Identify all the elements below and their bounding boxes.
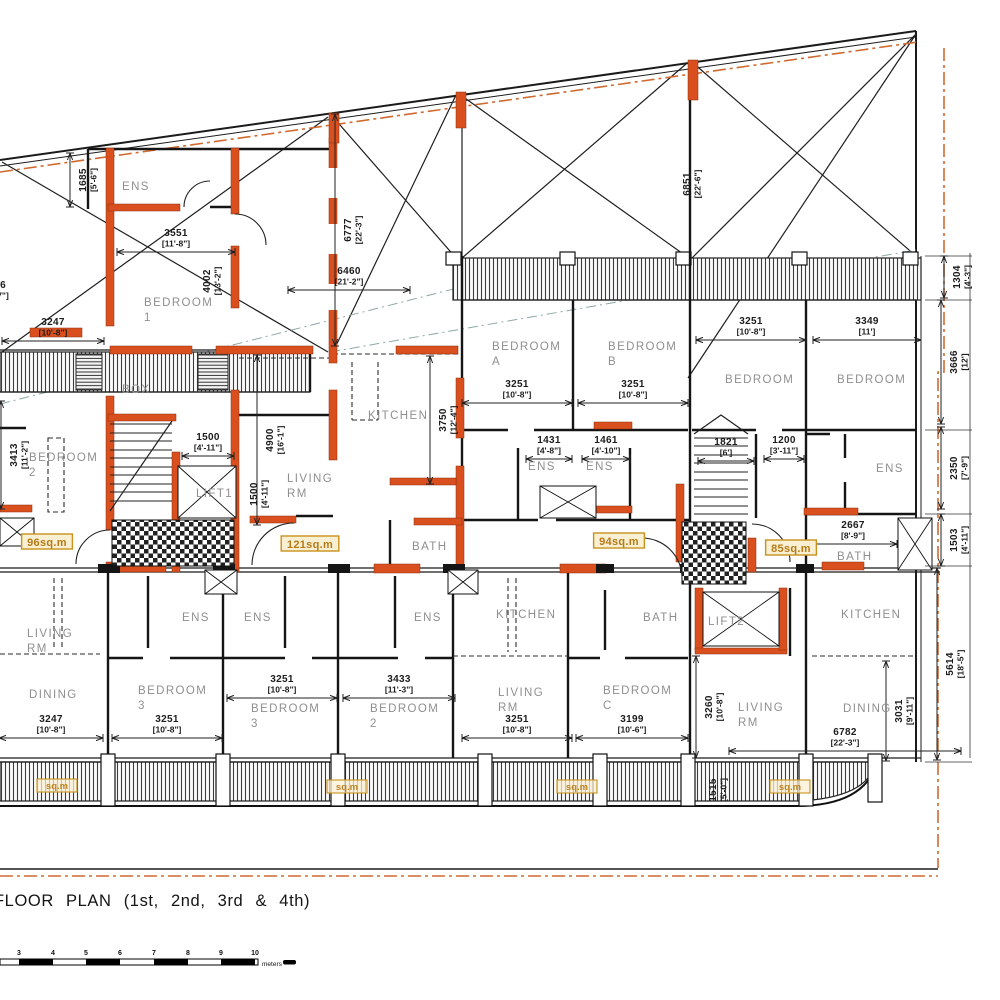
dimension-ft: [16'-1"]	[276, 425, 286, 454]
dimension-label: 1821[6']	[698, 437, 754, 465]
dimension-label: 3251[10'-8"]	[578, 379, 688, 407]
dimension-mm: 3251	[270, 674, 294, 685]
dimension-line	[729, 747, 961, 755]
dimension-label: 4002[13'-2"]	[202, 266, 223, 295]
dimension-label: 3251[10'-8"]	[112, 714, 222, 742]
dimension-ft: [10'-8"]	[619, 390, 648, 400]
dimension-mm: 1304	[952, 265, 963, 289]
dimension-line	[0, 734, 103, 742]
room-label: BEDROOMB	[608, 341, 677, 368]
dimension-ft: [11']	[859, 327, 876, 337]
staircase-1	[110, 421, 172, 511]
room-label: LIVINGRM	[27, 628, 73, 655]
room-label: KITCHEN	[841, 609, 901, 621]
room-label: BATH	[643, 612, 678, 624]
dimension-ft: [7'-9"]	[960, 456, 970, 480]
dimension-label: 1200[3'-11"]	[764, 435, 804, 463]
dimension-mm: 1685	[78, 168, 89, 192]
dimension-ft: [11'-2"]	[20, 441, 30, 469]
dimension-label: 3251[10'-8"]	[462, 714, 572, 742]
dimension-line	[462, 399, 572, 407]
dimension-label: 3349[11']	[813, 316, 921, 344]
dimension-mm: 2667	[841, 520, 865, 531]
dimension-mm: 3750	[438, 408, 449, 432]
dimension-ft: [4'-8"]	[537, 446, 561, 456]
dimension-ft: [4'-10"]	[592, 446, 621, 456]
room-label: LIFT1	[196, 488, 233, 500]
dimension-ft: [22'-3"]	[354, 215, 364, 244]
dimension-ft: [10'-8"]	[503, 390, 532, 400]
room-label: BEDROOM	[837, 374, 906, 386]
dimension-mm: 3199	[620, 714, 644, 725]
duct-shaft	[540, 486, 596, 518]
dimension-label: 3247[10'-8"]	[0, 714, 103, 742]
scale-tick: 4	[51, 950, 55, 957]
dimension-label: 2667[8'-9"]	[809, 520, 897, 548]
bottom-balcony-hatch	[0, 760, 878, 806]
dimension-ft: [12'-4"]	[449, 405, 459, 434]
balcony-area-badge: sq.m	[566, 782, 588, 793]
room-label: ENS	[876, 463, 904, 475]
room-label: BATH	[837, 551, 872, 563]
room-label: ENS	[586, 461, 614, 473]
scale-tick: 7	[152, 950, 156, 957]
room-label: BEDROOM	[725, 374, 794, 386]
dimension-mm: 4900	[265, 428, 276, 452]
room-label: KITCHEN	[368, 410, 428, 422]
dimension-mm: 3251	[505, 714, 529, 725]
dimension-line	[343, 694, 455, 702]
dimension-ft: [8'-9"]	[841, 531, 865, 541]
dimension-label: 3750[12'-4"]	[426, 356, 459, 484]
scale-tick: 9	[219, 950, 223, 957]
window-gaps	[327, 168, 339, 310]
dimension-mm: 5614	[945, 652, 956, 676]
scale-bar-ticks: 345678910	[17, 950, 259, 957]
balcony-area-badge: sq.m	[336, 782, 358, 793]
dimension-mm: 3433	[387, 674, 411, 685]
duct-shaft	[448, 570, 478, 594]
dimension-label: 1503[4'-11"]	[937, 514, 970, 566]
room-label: BEDROOM2	[370, 703, 439, 730]
dimension-mm: 1503	[949, 528, 960, 552]
dimension-label: 3260[10'-8"]	[692, 656, 725, 758]
dimension-mm: 3247	[39, 714, 63, 725]
dimension-mm: 3666	[949, 350, 960, 374]
dimension-ft: [10'-8"]	[39, 328, 68, 338]
scale-bar-end-dash	[283, 960, 296, 965]
dimension-line	[2, 337, 104, 345]
dimension-ft: 7"]	[0, 291, 9, 301]
dimension-ft: [4'-3"]	[963, 265, 973, 289]
dimension-label: 1461[4'-10"]	[582, 435, 630, 463]
dimension-ft: [10'-8"]	[37, 725, 66, 735]
dimension-ft: [10'-8"]	[737, 327, 766, 337]
dimension-mm: 6777	[343, 218, 354, 242]
dimension-ft: [4'-11"]	[260, 480, 270, 508]
dimension-line	[933, 568, 941, 760]
plan-title: FLOOR PLAN (1st, 2nd, 3rd & 4th)	[0, 892, 310, 910]
dimension-mm: 6851	[682, 172, 693, 196]
dimension-ft: [12']	[960, 353, 970, 370]
dimension-mm: 3251	[155, 714, 179, 725]
scale-tick: 8	[186, 950, 190, 957]
room-label: ENS	[182, 612, 210, 624]
room-label: ENS	[414, 612, 442, 624]
dimension-label: 1431[4'-8"]	[526, 435, 572, 463]
dimension-ft: [13'-2"]	[213, 266, 223, 295]
dimension-line	[578, 399, 688, 407]
dimension-ft: [10'-8"]	[715, 692, 725, 721]
dimension-label: 3251[10'-8"]	[696, 316, 806, 344]
room-label: ENS	[122, 181, 150, 193]
dimension-label: 1500[4'-11"]	[182, 432, 234, 460]
room-label: BEDROOMC	[603, 685, 672, 712]
dimension-line	[112, 734, 222, 742]
duct-shaft	[205, 570, 237, 594]
dimension-ft: [4'-11"]	[960, 526, 970, 554]
dimension-mm: 1200	[772, 435, 796, 446]
dimension-line	[692, 656, 700, 758]
room-label: BEDROOM3	[251, 703, 320, 730]
scale-bar: 345678910 meters	[0, 950, 296, 968]
dimension-label: 2350[7'-9"]	[937, 427, 970, 509]
entrance-lobby-2	[682, 522, 746, 584]
dimension-mm: 1821	[714, 437, 738, 448]
dimension-line	[809, 540, 897, 548]
dimension-label: 67"]	[0, 280, 9, 301]
dimension-mm: 3251	[739, 316, 763, 327]
floor-plan-drawing: 3551[11'-8"]1685[5'-6"]4002[13'-2"]3247[…	[0, 0, 1000, 1000]
dimension-mm: 3551	[164, 228, 188, 239]
dimension-mm: 3251	[621, 379, 645, 390]
dimension-ft: [11'-3"]	[385, 685, 413, 695]
room-label: BATH	[412, 541, 447, 553]
dimension-label: 3251[10'-8"]	[462, 379, 572, 407]
dimension-mm: 3260	[704, 695, 715, 719]
dimension-mm: 1515	[708, 778, 719, 802]
dimension-mm: 3413	[9, 443, 20, 467]
balcony-area-badge: sq.m	[46, 781, 68, 792]
dimension-label: 6782[22'-3"]	[729, 727, 961, 755]
dimension-mm: 1431	[537, 435, 561, 446]
room-label: LIFT2	[708, 616, 745, 628]
room-label: KITCHEN	[496, 609, 556, 621]
dimension-mm: 6460	[337, 266, 361, 277]
dimension-mm: 3251	[505, 379, 529, 390]
area-badge: 94sq.m	[599, 536, 639, 548]
dimension-label: 1500[4'-11"]	[249, 480, 270, 508]
dimension-mm: 1461	[594, 435, 618, 446]
scale-unit-label: meters	[262, 961, 283, 968]
dimension-label: 3199[10'-6"]	[576, 714, 688, 742]
dimension-line	[698, 457, 754, 465]
dimension-ft: [9'-11"]	[905, 697, 915, 725]
scale-tick: 3	[17, 950, 21, 957]
room-label: BEDROOMA	[492, 341, 561, 368]
room-label: LIVINGRM	[738, 702, 784, 729]
dimension-label: 3551[11'-8"]	[117, 228, 235, 256]
dimension-ft: [11'-8"]	[162, 239, 190, 249]
dimension-label: 3413[11'-2"]	[0, 401, 30, 509]
room-label: DINING	[29, 689, 78, 701]
scale-tick: 10	[251, 950, 259, 957]
dimension-line	[462, 734, 572, 742]
dimension-line	[764, 455, 804, 463]
dimension-line	[940, 256, 948, 298]
scale-tick: 6	[118, 950, 122, 957]
room-label: BEDROOM1	[144, 297, 213, 324]
room-label: BEDROOM3	[138, 685, 207, 712]
dimension-mm: 3247	[41, 317, 65, 328]
dimension-mm: 3349	[855, 316, 879, 327]
dimension-line	[813, 336, 921, 344]
room-label: ENS	[244, 612, 272, 624]
dimension-line	[227, 694, 337, 702]
dimension-label: 3247[10'-8"]	[2, 317, 104, 345]
dimension-mm: 2350	[949, 456, 960, 480]
dimension-ft: [18'-5"]	[956, 649, 966, 678]
area-badge: 85sq.m	[771, 543, 811, 555]
area-badge: 96sq.m	[27, 537, 67, 549]
room-label: LIVINGRM	[498, 687, 544, 714]
dimension-line	[576, 734, 688, 742]
dimension-line	[288, 286, 410, 294]
dimension-ft: [10'-8"]	[153, 725, 182, 735]
entrance-lobby-1	[112, 520, 234, 566]
dimension-ft: [10'-8"]	[268, 685, 297, 695]
dimension-ft: [10'-8"]	[503, 725, 532, 735]
dimension-line	[0, 401, 5, 509]
upper-right-balcony-hatch	[446, 252, 921, 300]
dimension-label: 6851[22'-6"]	[682, 169, 703, 198]
room-label: DINING	[843, 703, 892, 715]
dimension-mm: 1500	[196, 432, 220, 443]
dimension-label: 3433[11'-3"]	[343, 674, 455, 702]
dimension-ft: [3'-11"]	[770, 446, 798, 456]
room-label: ENS	[528, 461, 556, 473]
room-label: BOX	[122, 384, 151, 396]
dimension-ft: [22'-3"]	[831, 738, 860, 748]
dimension-line	[696, 336, 806, 344]
duct-shaft	[898, 518, 932, 570]
dimension-mm: 6	[0, 280, 6, 291]
balcony-area-badge: sq.m	[779, 782, 801, 793]
dimension-ft: [5'-6"]	[89, 168, 99, 192]
dimension-label: 6460[21'-2"]	[288, 266, 410, 294]
dimension-label: 1515[5'-0"]	[708, 778, 729, 802]
dimension-mm: 1500	[249, 482, 260, 506]
dimension-mm: 6782	[833, 727, 857, 738]
dimension-ft: [4'-11"]	[194, 443, 222, 453]
dimension-label: 3251[10'-8"]	[227, 674, 337, 702]
dimension-extension-lines	[925, 253, 972, 762]
dimension-line	[117, 248, 235, 256]
dimension-ft: [5'-0"]	[719, 778, 729, 802]
dimension-mm: 3031	[894, 699, 905, 723]
dimension-ft: [21'-2"]	[335, 277, 364, 287]
dimension-mm: 4002	[202, 269, 213, 293]
floor-plan-sheet: 3551[11'-8"]1685[5'-6"]4002[13'-2"]3247[…	[0, 0, 1000, 1000]
dimension-label: 1304[4'-3"]	[940, 256, 973, 298]
area-badge: 121sq.m	[287, 539, 333, 551]
dimension-ft: [10'-6"]	[618, 725, 647, 735]
dimension-line	[182, 452, 234, 460]
dimension-ft: [6']	[720, 448, 733, 458]
room-label: LIVINGRM	[287, 473, 333, 500]
scale-tick: 5	[84, 950, 88, 957]
dimension-ft: [22'-6"]	[693, 169, 703, 198]
dimension-label: 3666[12']	[937, 300, 970, 424]
